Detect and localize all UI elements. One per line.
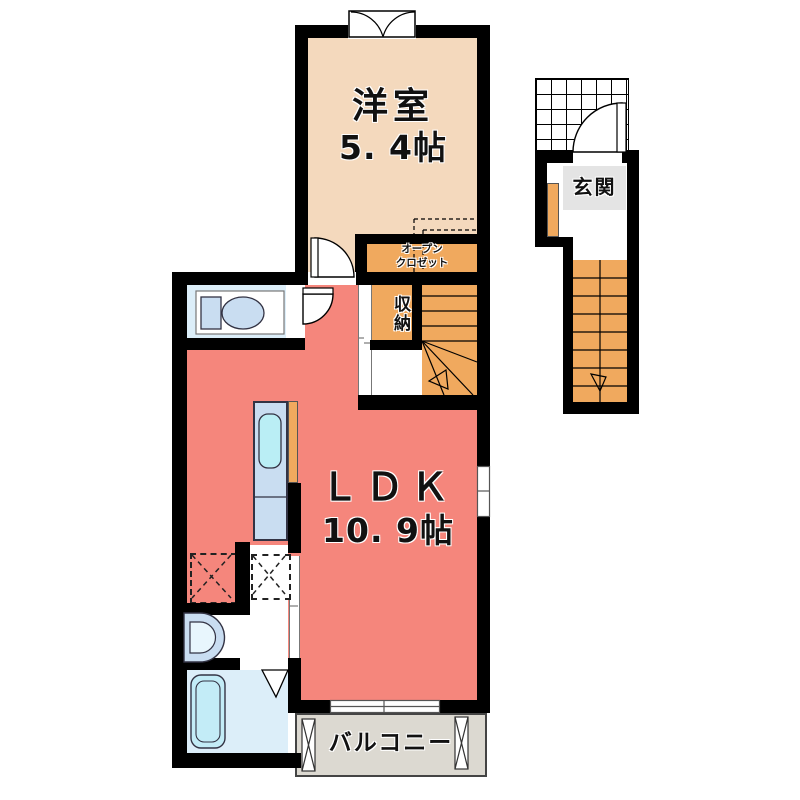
wall-closet-left [355, 234, 367, 272]
kitchen-counter [253, 401, 288, 541]
storage-label: 収納 [374, 289, 410, 339]
entrance-label: 玄関 [563, 175, 626, 199]
washroom-lower [187, 615, 288, 658]
stairs-upper [422, 285, 477, 395]
wall-entrance-jog [535, 237, 573, 247]
wall-washroom-left [235, 542, 250, 603]
bath-threshold [240, 658, 288, 670]
wall-ldk-bottom-right [440, 700, 477, 713]
window-ldk-right [477, 466, 490, 517]
wall-storage-bottom [370, 340, 422, 350]
wall-bath-top [172, 658, 240, 670]
wall-ldk-bottom-left [301, 700, 330, 713]
washer-space [251, 554, 291, 600]
balcony-label: バルコニー [310, 730, 472, 758]
wall-stairwell-bottom [563, 402, 639, 414]
shoe-cabinet [547, 183, 559, 237]
wall-entrance-left [535, 150, 547, 247]
wall-bath-right [288, 658, 301, 713]
toilet-room [187, 285, 286, 338]
western-room-label: 洋室 5. 4帖 [303, 85, 483, 168]
ldk-label: ＬＤＫ 10. 9帖 [298, 465, 478, 550]
opening-toilet-door [286, 285, 305, 338]
wall-entrance-right [627, 150, 639, 414]
fridge-space [190, 553, 237, 604]
porch-hatch [535, 78, 629, 155]
counter-strip [288, 401, 298, 483]
western-room-name: 洋室 [303, 85, 483, 128]
open-closet-label: オープン クロゼット [367, 243, 477, 270]
opening-entrance-door [573, 150, 622, 163]
wall-stairwell-left [563, 247, 573, 412]
wall-stairs-bottom [358, 395, 490, 410]
ldk-name: ＬＤＫ [298, 465, 478, 511]
sliding-window-balcony [330, 700, 440, 713]
open-closet-line2: クロゼット [367, 257, 477, 271]
ldk-size: 10. 9帖 [298, 511, 478, 551]
wall-toilet-bottom [172, 338, 305, 350]
bathroom [187, 670, 288, 753]
wall-bottom-outer [172, 753, 301, 768]
floorplan-canvas: 洋室 5. 4帖 ＬＤＫ 10. 9帖 収納 オープン クロゼット 玄関 バルコ… [0, 0, 800, 800]
open-closet-line1: オープン [367, 243, 477, 257]
stairs-lower [573, 260, 627, 402]
opening-western-window [348, 24, 416, 39]
western-room-size: 5. 4帖 [303, 128, 483, 168]
opening-western-door [308, 272, 356, 285]
wall-storage-right [412, 285, 422, 345]
wall-washroom-mid [172, 603, 250, 615]
stair-landing [370, 350, 422, 395]
